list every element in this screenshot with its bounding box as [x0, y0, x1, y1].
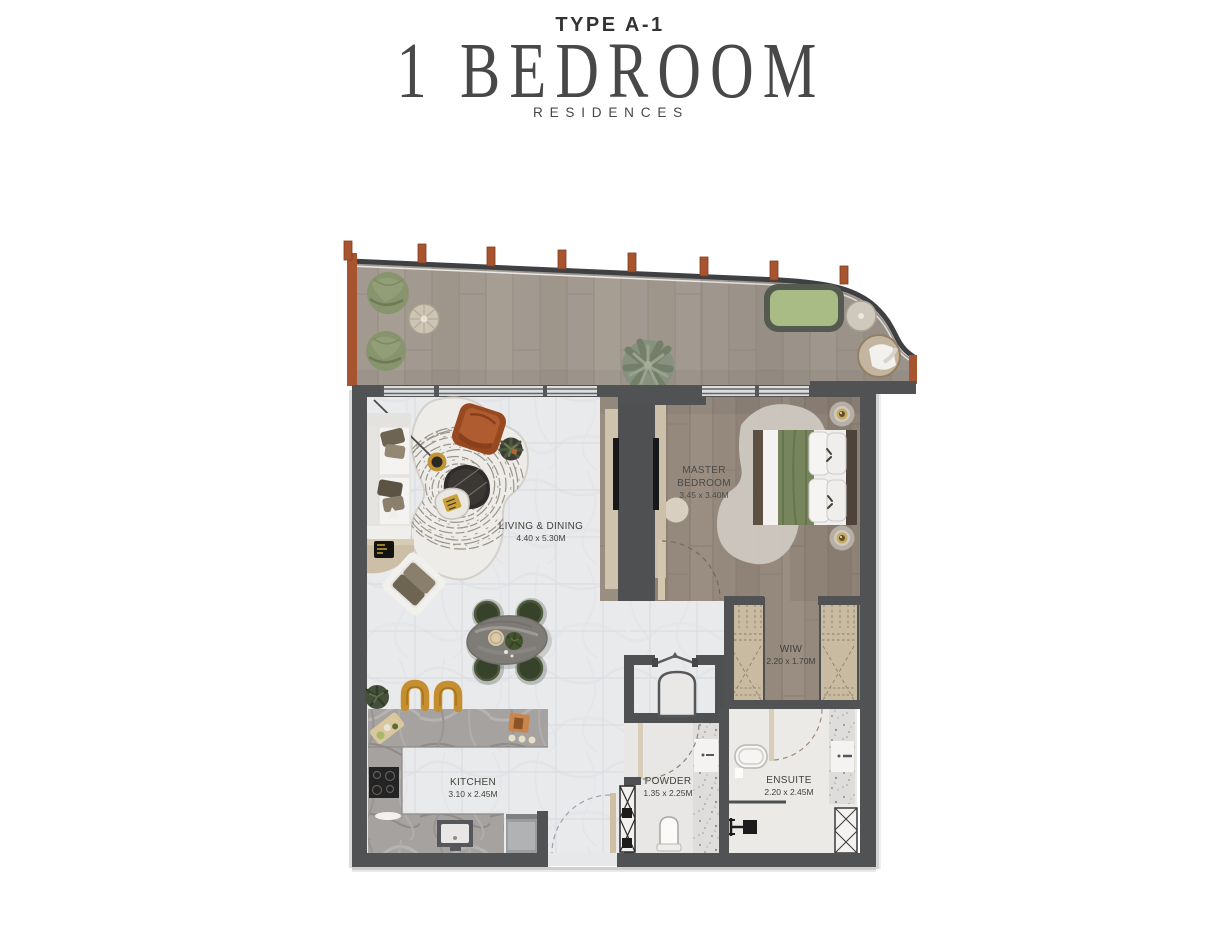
- svg-text:3.10 x 2.45M: 3.10 x 2.45M: [448, 789, 497, 799]
- svg-text:2.20 x 2.45M: 2.20 x 2.45M: [764, 787, 813, 797]
- svg-text:WIW: WIW: [780, 644, 803, 655]
- svg-text:3.45 x 3.40M: 3.45 x 3.40M: [679, 490, 728, 500]
- svg-text:ENSUITE: ENSUITE: [766, 775, 811, 786]
- svg-text:1 BEDROOM: 1 BEDROOM: [397, 28, 826, 115]
- svg-text:2.20 x 1.70M: 2.20 x 1.70M: [766, 656, 815, 666]
- svg-text:LIVING & DINING: LIVING & DINING: [499, 521, 584, 532]
- svg-text:BEDROOM: BEDROOM: [677, 478, 731, 489]
- svg-text:4.40 x 5.30M: 4.40 x 5.30M: [516, 533, 565, 543]
- svg-text:POWDER: POWDER: [645, 776, 692, 787]
- svg-text:KITCHEN: KITCHEN: [450, 777, 496, 788]
- svg-text:1.35 x 2.25M: 1.35 x 2.25M: [643, 788, 692, 798]
- svg-text:RESIDENCES: RESIDENCES: [533, 104, 689, 120]
- svg-text:MASTER: MASTER: [682, 465, 725, 476]
